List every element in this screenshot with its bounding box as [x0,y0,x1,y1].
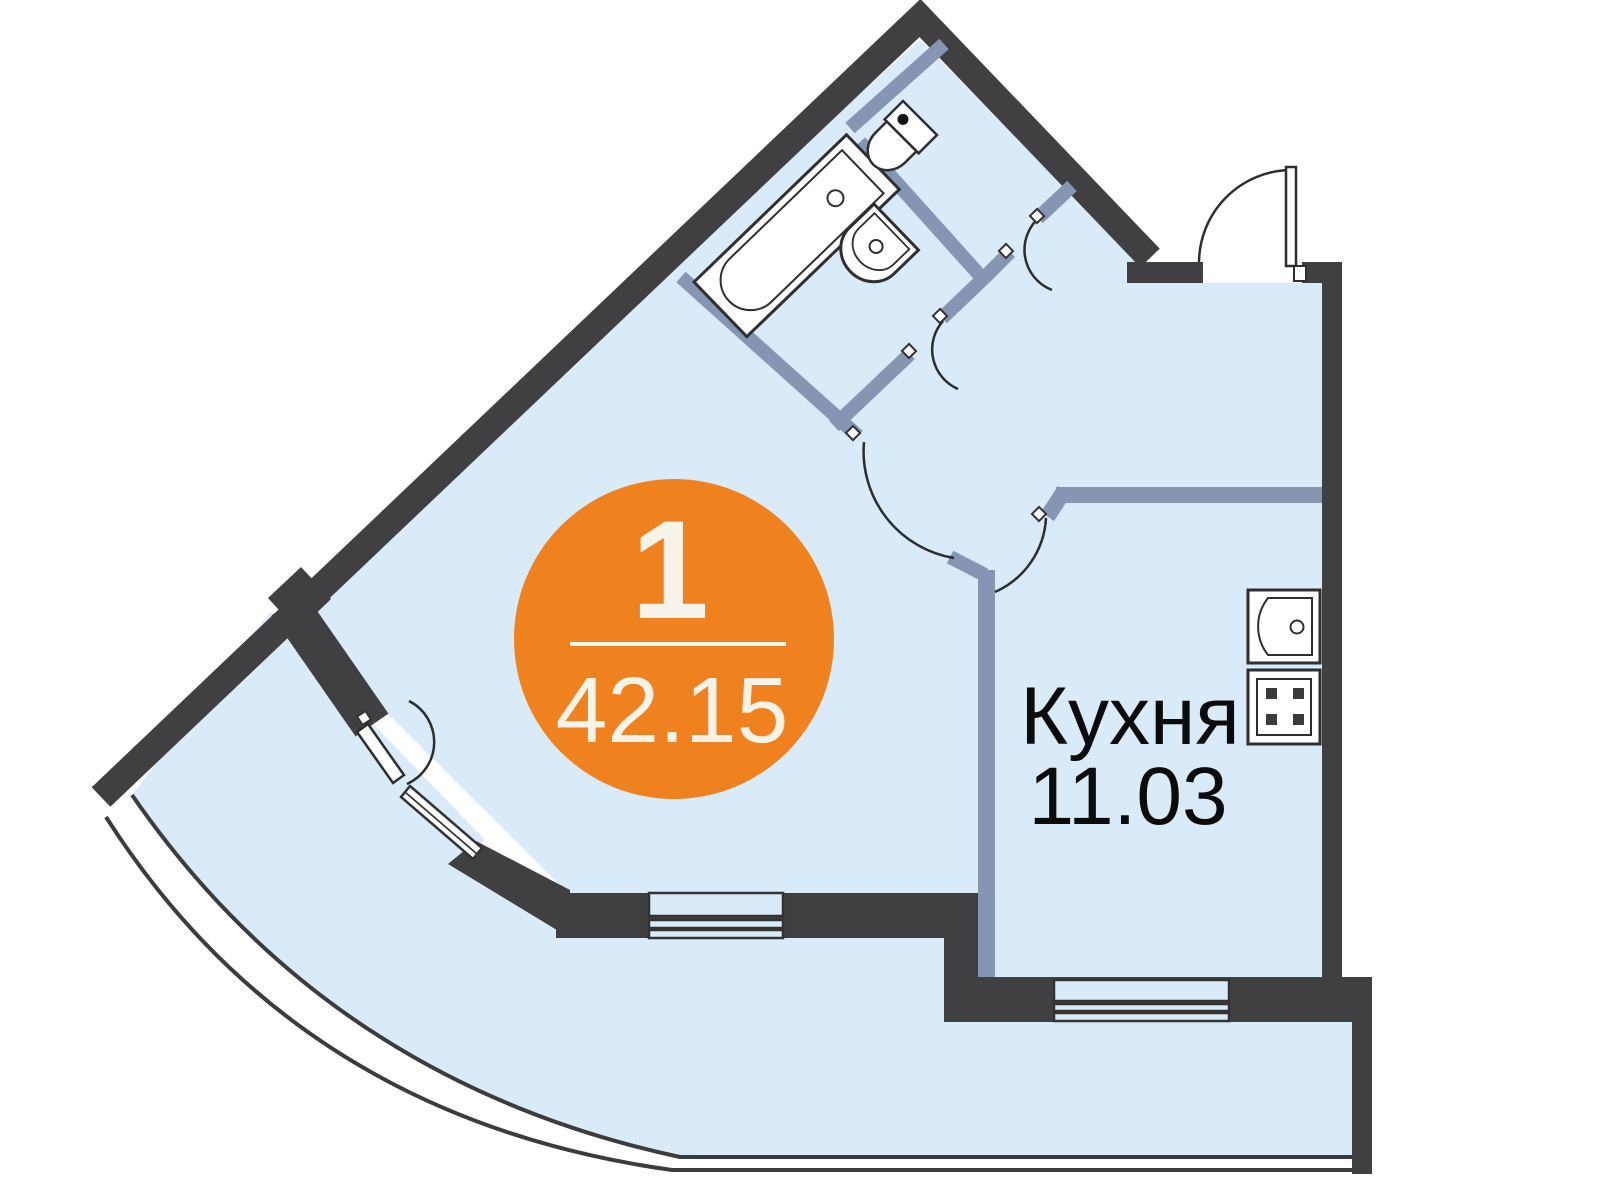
kitchen-left-partition [978,570,995,977]
kitchen-window [1054,980,1229,1021]
area-badge: 1 42.15 [514,479,834,799]
stove-icon [1248,670,1320,744]
apartment-floor-plan: 1 42.15 Кухня 11.03 [0,0,1600,1200]
kitchen-sink-icon [1248,590,1320,663]
entrance-door-jamb [1294,266,1306,281]
kitchen-top-partition [1056,487,1322,503]
room-labels: Кухня 11.03 [1020,671,1239,842]
right-wall [1322,262,1342,1022]
kitchen-area: 11.03 [1028,751,1227,842]
entrance-door [1199,167,1306,281]
rooms-count: 1 [631,491,709,648]
kitchen-label: Кухня [1020,671,1239,762]
entrance-door-leaf [1286,167,1296,266]
floor-plan-page: 1 42.15 Кухня 11.03 [0,0,1600,1200]
top-wall-left-stub [1127,262,1203,283]
entrance-door-arc [1199,170,1291,262]
total-area: 42.15 [556,658,789,762]
livingroom-window [649,893,783,938]
balcony-right-wall [1352,977,1372,1174]
